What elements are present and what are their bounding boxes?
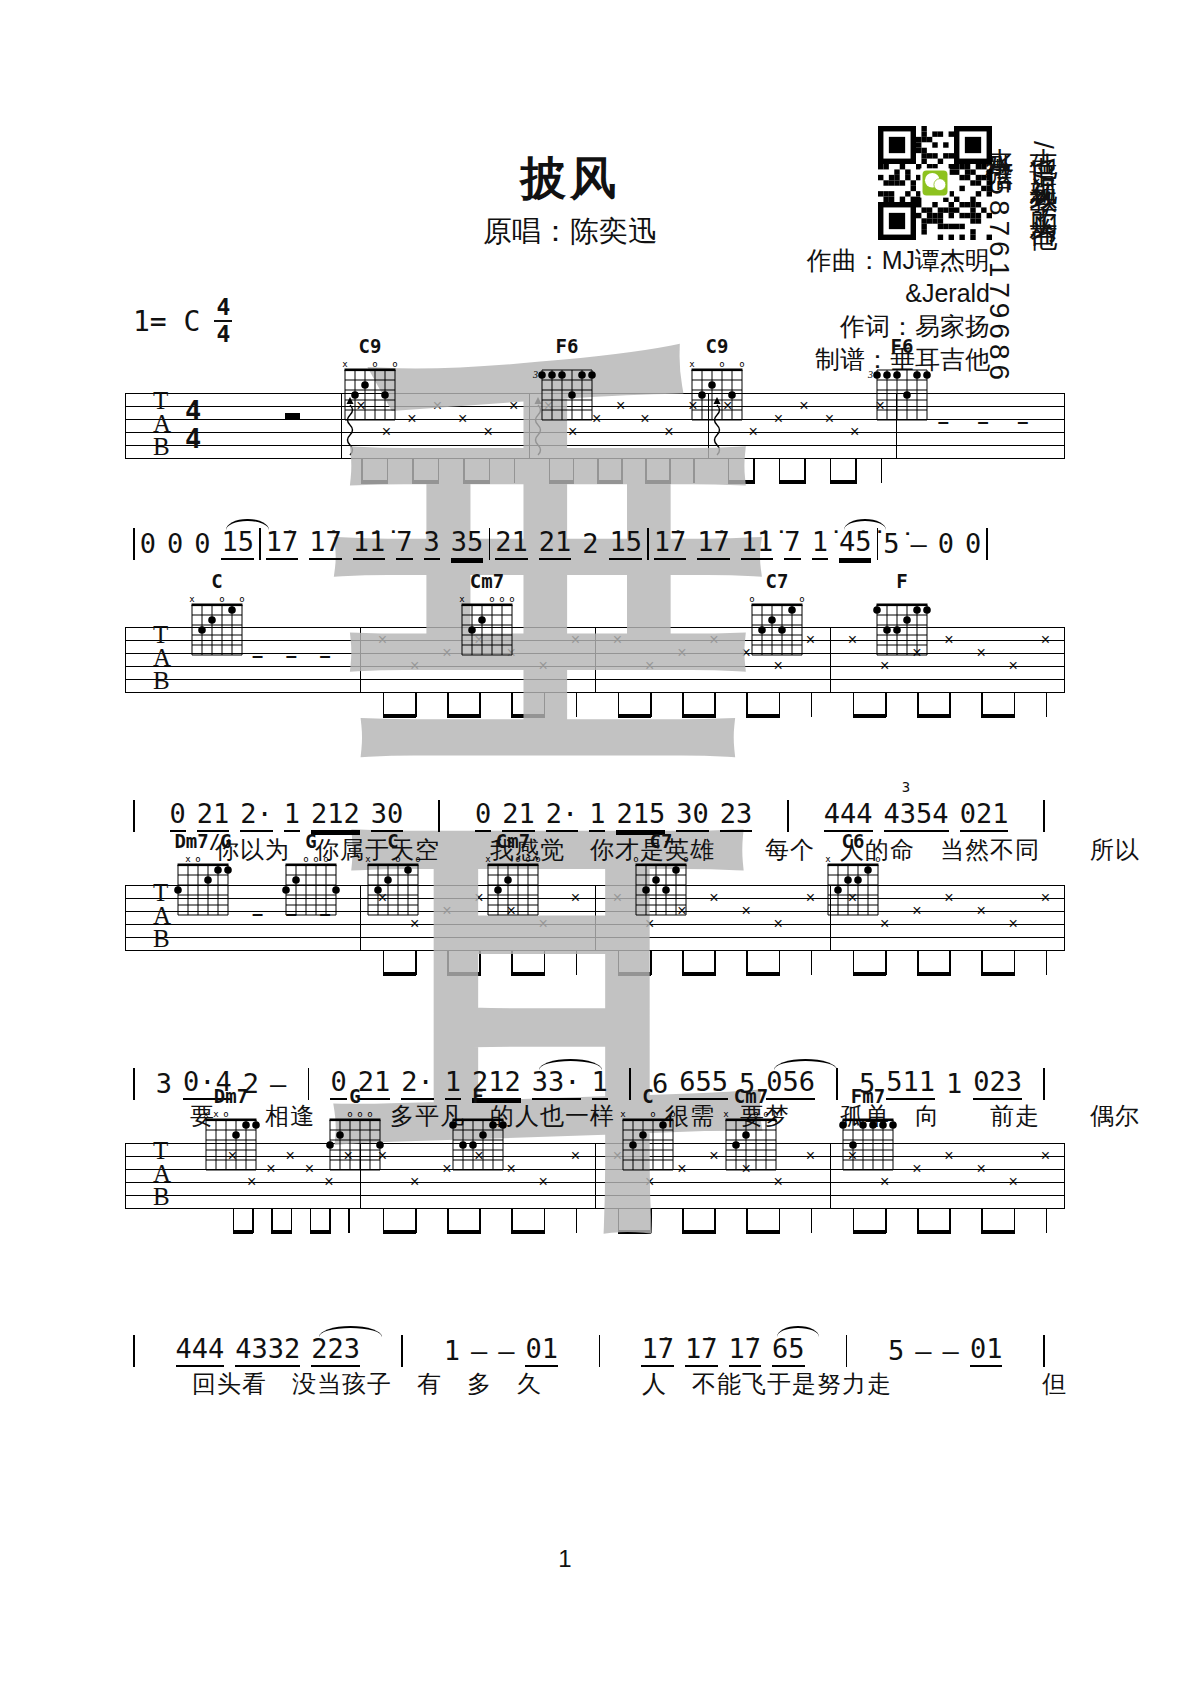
melody-note: 21 (539, 528, 572, 560)
melody-note: 0 (475, 800, 491, 832)
chord-grid: ooo (320, 1107, 390, 1179)
strum-x: × (266, 1161, 275, 1177)
melody-barline (308, 1068, 310, 1100)
staff-edge (125, 885, 126, 951)
strum-x: × (433, 398, 442, 414)
chord-diagram: F (443, 1086, 513, 1179)
melody-note: 21 (502, 800, 535, 832)
chord-grid: xoo (613, 1107, 683, 1179)
measure-barline (830, 627, 831, 693)
chord-grid (867, 592, 937, 664)
strum-x: × (613, 890, 622, 906)
melody-note: 1̇7 (654, 528, 687, 560)
half-rest (285, 413, 300, 420)
staff-line (125, 458, 1065, 459)
svg-text:x: x (189, 593, 195, 603)
note-stem (576, 693, 578, 717)
lyrics-line: 回头看 没当孩子 有 多 久 人 不能飞于是努力走 但 (192, 1368, 1067, 1400)
melody-measure: 2121215 (495, 528, 642, 560)
melody-note: 444 (824, 800, 873, 832)
beam (447, 972, 481, 976)
chord-grid: xoo (682, 357, 752, 429)
note-stem (348, 1209, 350, 1233)
melody-barline (1043, 1335, 1045, 1367)
melody-note: 33· (532, 1068, 581, 1100)
chord-grid: xoo (182, 592, 252, 664)
melody-note: 1̇7 (266, 528, 299, 560)
chord-grid: oo (626, 852, 696, 924)
svg-text:o: o (372, 358, 377, 368)
chord-grid: xoo (358, 852, 428, 924)
svg-text:o: o (195, 853, 200, 863)
beam (549, 480, 575, 484)
svg-text:o: o (313, 853, 318, 863)
svg-text:o: o (633, 853, 638, 863)
strum-x: × (378, 632, 387, 648)
melody-measure: 1——01 (444, 1335, 558, 1367)
melody-note: 021 (960, 800, 1009, 832)
tab-letter: B (153, 1184, 170, 1209)
beam (447, 1230, 481, 1234)
note-stem (811, 951, 813, 975)
svg-text:o: o (719, 358, 724, 368)
melody-measure: 00015 (140, 528, 254, 560)
chord-diagram: F (867, 571, 937, 664)
side-text-services: 吉他谱/视频教学/购买吉他 (1024, 126, 1062, 1056)
melody-note: 0 (167, 530, 183, 560)
strum-x: × (799, 398, 808, 414)
chord-grid: oo (742, 592, 812, 664)
chord-name: Fm7 (833, 1086, 903, 1107)
strum-x: × (458, 411, 467, 427)
chord-diagram: F63 (867, 336, 937, 429)
melody-line: 000151̇71̇71̇1̇733521212151̇71̇71̇1̇71̇4… (133, 528, 988, 560)
staff-edge (125, 627, 126, 693)
beam (361, 480, 388, 484)
melody-note: 2· (240, 800, 273, 832)
beam (310, 1230, 331, 1234)
staff-edge (1064, 393, 1065, 459)
melody-barline (846, 1335, 848, 1367)
beam (233, 1230, 254, 1234)
strum-x: × (305, 1161, 314, 1177)
svg-text:o: o (323, 853, 328, 863)
strum-x: × (407, 411, 416, 427)
svg-text:o: o (515, 853, 520, 863)
strum-x: × (539, 658, 548, 674)
melody-note: 0 (170, 800, 186, 832)
melody-note: 215 (616, 800, 665, 832)
melody-note: 223 (311, 1335, 360, 1367)
tab-letter: B (153, 668, 170, 693)
beam (511, 714, 545, 718)
svg-text:o: o (392, 358, 397, 368)
staff-edge (1064, 627, 1065, 693)
chord-grid: xxo (196, 1107, 266, 1179)
chord-name: F (443, 1086, 513, 1107)
chord-diagram: Gooo (276, 831, 346, 924)
strum-x: × (825, 411, 834, 427)
melody-measure: 1̇71̇71̇765 (641, 1335, 804, 1367)
melody-measure: 44443543021 (824, 800, 1009, 832)
beam (917, 972, 951, 976)
beam (746, 972, 780, 976)
chord-diagram: Cm7xooo (452, 571, 522, 664)
melody-note: 5 (888, 1337, 904, 1367)
note-stem (811, 693, 813, 717)
melody-line: 44443322231——011̇71̇71̇7655——01 (133, 1335, 1045, 1367)
melody-measure: 1̇71̇71̇1̇7335 (266, 528, 484, 560)
staff-edge (125, 1143, 126, 1209)
wechat-qr-code (878, 126, 992, 244)
svg-text:o: o (357, 1108, 362, 1118)
melody-note: 15 (221, 528, 254, 560)
strum-x: × (1009, 1174, 1018, 1190)
staff-line (125, 432, 1065, 433)
staff-edge (125, 393, 126, 459)
beam (597, 480, 623, 484)
chord-name: F (867, 571, 937, 592)
chord-grid: xo (818, 852, 888, 924)
melody-note: 1 (589, 800, 605, 832)
svg-text:x: x (213, 1108, 219, 1118)
beam (746, 714, 780, 718)
melody-note: 1 (444, 1337, 460, 1367)
melody-note: 0 (965, 530, 981, 560)
melody-note: 21 (197, 800, 230, 832)
melody-note: 444 (176, 1335, 225, 1367)
composer-credit-2: &Jerald (600, 277, 990, 310)
melody-barline (877, 528, 879, 560)
chord-name: C (358, 831, 428, 852)
svg-text:3: 3 (532, 369, 538, 380)
beam (412, 480, 439, 484)
strum-x: × (806, 1148, 815, 1164)
melody-note: 1 (946, 1070, 962, 1100)
time-signature: 4 4 (214, 296, 232, 346)
svg-text:o: o (875, 853, 880, 863)
melody-note: 0 (938, 530, 954, 560)
strum-x: × (976, 903, 985, 919)
strum-dash: – (252, 645, 263, 665)
beam (779, 480, 806, 484)
melody-barline (647, 528, 649, 560)
chord-diagram: C7oo (626, 831, 696, 924)
melody-barline (438, 800, 440, 832)
measure-barline (830, 1143, 831, 1209)
chord-diagram: F63 (532, 336, 602, 429)
svg-text:x: x (485, 853, 491, 863)
melody-note: — (270, 1070, 286, 1100)
chord-name: C7 (742, 571, 812, 592)
melody-note: 1̇1̇ (353, 528, 386, 560)
beam (383, 1230, 417, 1234)
melody-note: 1̇7 (309, 528, 342, 560)
svg-text:o: o (395, 853, 400, 863)
melody-barline (489, 528, 491, 560)
strum-x: × (850, 424, 859, 440)
svg-text:x: x (459, 593, 465, 603)
melody-note: 5̇ (883, 530, 899, 560)
measure-barline (595, 627, 596, 693)
melody-note: 0 (140, 530, 156, 560)
melody-note: 21 (495, 528, 528, 560)
melody-barline (133, 528, 135, 560)
svg-text:o: o (650, 1108, 655, 1118)
chord-name: G (276, 831, 346, 852)
chord-diagram: Fm7 (833, 1086, 903, 1179)
svg-text:x: x (825, 853, 831, 863)
strum-x: × (640, 411, 649, 427)
melody-note: 212 (311, 800, 360, 832)
melody-note: 01 (970, 1335, 1003, 1367)
chord-grid (833, 1107, 903, 1179)
melody-note: 65 (772, 1335, 805, 1367)
melody-measure: 5——01 (888, 1335, 1002, 1367)
staff-time-bottom: 4 (185, 425, 201, 452)
chord-name: C9 (335, 336, 405, 357)
melody-barline (787, 800, 789, 832)
chord-name: C7 (626, 831, 696, 852)
svg-text:x: x (723, 1108, 729, 1118)
composer-credit: 作曲：MJ谭杰明 (600, 244, 990, 277)
svg-text:o: o (367, 1108, 372, 1118)
chord-name: Cm7 (452, 571, 522, 592)
svg-text:x: x (689, 358, 695, 368)
beam (383, 972, 417, 976)
melody-note: — (498, 1337, 514, 1367)
melody-barline (1043, 1068, 1045, 1100)
beam (511, 972, 545, 976)
melody-note: 0 (194, 530, 210, 560)
melody-note: 43543 (884, 800, 949, 832)
svg-text:o: o (535, 853, 540, 863)
chord-diagram: C6xo (818, 831, 888, 924)
staff-line (125, 445, 1065, 446)
chord-diagram: Gooo (320, 1086, 390, 1179)
melody-note: — (471, 1337, 487, 1367)
svg-text:o: o (415, 853, 420, 863)
note-stem (514, 459, 516, 483)
strum-x: × (944, 890, 953, 906)
beam (853, 972, 887, 976)
beam (618, 1230, 652, 1234)
melody-barline (1043, 800, 1045, 832)
melody-line: 30·42—0212·121233·16655505655111023 (133, 1068, 1045, 1100)
melody-barline (259, 528, 261, 560)
svg-text:x: x (365, 853, 371, 863)
strum-x: × (613, 632, 622, 648)
strum-x: × (509, 398, 518, 414)
beam (682, 1230, 716, 1234)
chord-grid: 3 (867, 357, 937, 429)
svg-text:o: o (753, 1108, 758, 1118)
chord-name: C (182, 571, 252, 592)
beam (917, 1230, 951, 1234)
melody-note: 1̇7 (641, 1335, 674, 1367)
svg-text:o: o (773, 1108, 778, 1118)
strum-x: × (774, 411, 783, 427)
strum-x: × (410, 658, 419, 674)
chord-grid: xooo (452, 592, 522, 664)
svg-text:o: o (347, 1108, 352, 1118)
chord-diagram: Cxoo (182, 571, 252, 664)
note-stem (576, 1209, 578, 1233)
chord-name: F6 (867, 336, 937, 357)
melody-barline (986, 528, 988, 560)
melody-note: 2· (546, 800, 579, 832)
beam (383, 714, 417, 718)
chord-diagram: Cxoo (358, 831, 428, 924)
strum-x: × (539, 1174, 548, 1190)
beam (511, 1230, 545, 1234)
chord-grid (443, 1107, 513, 1179)
measure-barline (529, 393, 530, 459)
measure-barline (595, 1143, 596, 1209)
strum-x: × (848, 632, 857, 648)
melody-note: — (910, 530, 926, 560)
melody-note: 30 (371, 800, 404, 832)
beam (682, 714, 716, 718)
note-stem (811, 1209, 813, 1233)
melody-note: — (915, 1337, 931, 1367)
chord-grid: ooo (276, 852, 346, 924)
chord-name: Cm7 (716, 1086, 786, 1107)
melody-barline (133, 1068, 135, 1100)
strum-x: × (442, 903, 451, 919)
svg-text:o: o (749, 593, 754, 603)
strum-x: × (944, 632, 953, 648)
melody-note: 023 (973, 1068, 1022, 1100)
melody-note: 35 (451, 528, 484, 560)
staff-time-top: 4 (185, 397, 201, 424)
note-stem (1046, 1209, 1048, 1233)
chord-name: F6 (532, 336, 602, 357)
chord-name: Dm7 (196, 1086, 266, 1107)
melody-note: 1̇7 (729, 1335, 762, 1367)
svg-text:o: o (219, 593, 224, 603)
note-stem (576, 951, 578, 975)
strum-dash: – (938, 411, 949, 431)
melody-line: 0212·1212300212·1215302344443543021 (133, 800, 1045, 832)
melody-note: 1 (284, 800, 300, 832)
strum-x: × (616, 398, 625, 414)
beam (917, 714, 951, 718)
svg-text:o: o (739, 358, 744, 368)
beam (271, 1230, 292, 1234)
strum-x: × (709, 890, 718, 906)
svg-text:o: o (489, 593, 494, 603)
beam (853, 1230, 887, 1234)
note-stem (693, 459, 695, 483)
strum-x: × (677, 645, 686, 661)
chord-grid: xo (168, 852, 238, 924)
chord-diagram: Dm7xxo (196, 1086, 266, 1179)
chord-grid: 3 (532, 357, 602, 429)
beam (463, 480, 490, 484)
strum-x: × (912, 1161, 921, 1177)
note-stem (881, 459, 883, 483)
svg-text:o: o (670, 1108, 675, 1118)
svg-text:o: o (239, 593, 244, 603)
melody-barline (133, 1335, 135, 1367)
staff-edge (1064, 885, 1065, 951)
svg-text:3: 3 (867, 369, 873, 380)
melody-note: 01 (525, 1335, 558, 1367)
strum-x: × (1041, 1148, 1050, 1164)
melody-note: 2 (582, 530, 598, 560)
melody-note: 7 (396, 528, 412, 560)
melody-note: 23 (720, 800, 753, 832)
strum-x: × (645, 658, 654, 674)
beam (746, 1230, 780, 1234)
melody-note: 7 (784, 528, 800, 560)
svg-text:o: o (763, 1108, 768, 1118)
beam (447, 714, 481, 718)
melody-measure: 1̇71̇71̇1̇71̇4̇5̇ (654, 528, 872, 560)
melody-measure: 4444332223 (176, 1335, 361, 1367)
beam (981, 1230, 1015, 1234)
svg-text:o: o (223, 1108, 228, 1118)
chord-diagram: Cm7xooo (478, 831, 548, 924)
strum-x: × (442, 645, 451, 661)
strum-x: × (286, 1148, 295, 1164)
beam (645, 480, 671, 484)
melody-note: 4̇5̇ (839, 528, 872, 560)
svg-text:x: x (203, 1108, 209, 1118)
chord-grid: xooo (478, 852, 548, 924)
measure-barline (595, 885, 596, 951)
melody-measure: 5̇—00 (883, 530, 981, 560)
chord-name: C9 (682, 336, 752, 357)
strum-dash: – (286, 645, 297, 665)
key-signature: 1= C 4 4 (133, 296, 232, 346)
beam (618, 714, 652, 718)
svg-text:o: o (683, 853, 688, 863)
melody-note: 1̇1̇ (741, 528, 774, 560)
strum-x: × (912, 903, 921, 919)
strum-x: × (806, 890, 815, 906)
chord-name: Dm7/G (168, 831, 238, 852)
strum-dash: – (252, 903, 263, 923)
strum-x: × (774, 916, 783, 932)
svg-text:x: x (342, 358, 348, 368)
strum-x: × (571, 890, 580, 906)
melody-barline (401, 1335, 403, 1367)
beam (618, 972, 652, 976)
melody-note: 4332 (235, 1335, 300, 1367)
tab-letter: B (153, 434, 170, 459)
tab-letter: B (153, 926, 170, 951)
melody-note: 1 (592, 1068, 608, 1100)
chord-name: G (320, 1086, 390, 1107)
strum-x: × (709, 632, 718, 648)
melody-measure: 0212·121230 (170, 800, 404, 832)
chord-diagram: C9xoo (682, 336, 752, 429)
chord-name: C (613, 1086, 683, 1107)
chord-diagram: Cm7xooo (716, 1086, 786, 1179)
strum-x: × (741, 903, 750, 919)
tab-staff: TAB–––××××××××××××××××××××× (125, 885, 1065, 951)
beam (981, 972, 1015, 976)
strum-x: × (571, 1148, 580, 1164)
melody-note: 15 (609, 528, 642, 560)
melody-barline (599, 1335, 601, 1367)
chord-name: C6 (818, 831, 888, 852)
strum-x: × (484, 424, 493, 440)
strum-x: × (976, 1161, 985, 1177)
strum-x: × (944, 1148, 953, 1164)
